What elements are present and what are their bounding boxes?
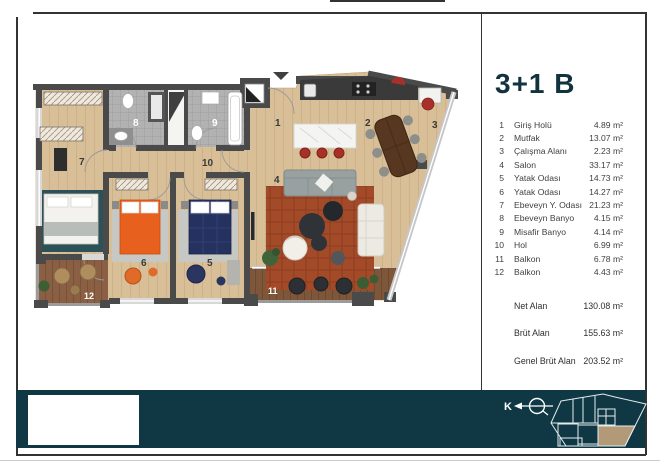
legend-room-no: 9	[493, 227, 504, 237]
total-genel-brut-alan: Genel Brüt Alan 203.52 m²	[493, 354, 623, 367]
legend-room-area: 6.99 m²	[594, 240, 623, 250]
legend-room-area: 2.23 m²	[594, 146, 623, 156]
legend-room-name: Ebeveyn Banyo	[514, 213, 594, 223]
legend-room-name: Hol	[514, 240, 594, 250]
site-plan-thumbnail	[548, 391, 648, 448]
legend-room-name: Balkon	[514, 267, 594, 277]
legend-room-name: Yatak Odası	[514, 187, 589, 197]
legend-room-area: 4.43 m²	[594, 267, 623, 277]
total-value: 155.63 m²	[583, 328, 623, 338]
legend-room-name: Ebeveyn Y. Odası	[514, 200, 589, 210]
room-label-4: 4	[274, 175, 280, 186]
legend-row: 6Yatak Odası14.27 m²	[493, 185, 623, 198]
total-label: Net Alan	[514, 301, 583, 311]
room-legend-list: 1Giriş Holü4.89 m² 2Mutfak13.07 m² 3Çalı…	[493, 118, 623, 279]
entrance-shaft	[240, 78, 270, 108]
legend-room-name: Misafir Banyo	[514, 227, 594, 237]
legend-room-area: 4.89 m²	[594, 120, 623, 130]
room-label-8: 8	[133, 118, 139, 129]
legend-room-area: 33.17 m²	[589, 160, 623, 170]
legend-room-no: 7	[493, 200, 504, 210]
room-label-11: 11	[268, 286, 278, 296]
legend-room-name: Çalışma Alanı	[514, 146, 594, 156]
legend-row: 9Misafir Banyo4.14 m²	[493, 225, 623, 238]
room-label-10: 10	[202, 158, 214, 169]
legend-room-area: 14.73 m²	[589, 173, 623, 183]
legend-room-no: 12	[493, 267, 504, 277]
room-label-5: 5	[207, 258, 213, 269]
legend-room-area: 6.78 m²	[594, 254, 623, 264]
legend-room-name: Yatak Odası	[514, 173, 589, 183]
legend-room-name: Salon	[514, 160, 589, 170]
room-label-12: 12	[84, 291, 94, 301]
legend-row: 7Ebeveyn Y. Odası21.23 m²	[493, 198, 623, 211]
legend-room-no: 3	[493, 146, 504, 156]
floor-plan-sheet: { "legend": { "title": "3+1 B", "rooms":…	[0, 0, 660, 466]
entrance-arrow-icon	[273, 72, 289, 80]
room-label-2: 2	[365, 118, 371, 129]
legend-room-no: 11	[493, 254, 504, 264]
legend-row: 10Hol6.99 m²	[493, 239, 623, 252]
total-label: Brüt Alan	[514, 328, 583, 338]
legend-room-area: 13.07 m²	[589, 133, 623, 143]
legend-row: 4Salon33.17 m²	[493, 158, 623, 171]
room-label-7: 7	[79, 157, 85, 168]
legend-room-area: 4.14 m²	[594, 227, 623, 237]
legend-row: 5Yatak Odası14.73 m²	[493, 172, 623, 185]
legend-row: 3Çalışma Alanı2.23 m²	[493, 145, 623, 158]
legend-room-area: 21.23 m²	[589, 200, 623, 210]
legend-room-no: 4	[493, 160, 504, 170]
legend-row: 12Balkon4.43 m²	[493, 265, 623, 278]
total-value: 130.08 m²	[583, 301, 623, 311]
total-label: Genel Brüt Alan	[514, 356, 583, 366]
legend-room-name: Mutfak	[514, 133, 589, 143]
total-value: 203.52 m²	[583, 356, 623, 366]
legend-room-area: 14.27 m²	[589, 187, 623, 197]
legend-room-no: 2	[493, 133, 504, 143]
logo-placeholder	[28, 395, 139, 445]
legend-row: 8Ebeveyn Banyo4.15 m²	[493, 212, 623, 225]
legend-row: 11Balkon6.78 m²	[493, 252, 623, 265]
total-brut-alan: Brüt Alan 155.63 m²	[493, 326, 623, 339]
room-label-9: 9	[212, 118, 218, 129]
site-plan-outline	[551, 394, 646, 446]
legend-room-no: 5	[493, 173, 504, 183]
legend-room-no: 8	[493, 213, 504, 223]
legend-room-area: 4.15 m²	[594, 213, 623, 223]
legend-row: 1Giriş Holü4.89 m²	[493, 118, 623, 131]
total-net-alan: Net Alan 130.08 m²	[493, 299, 623, 312]
legend-room-no: 1	[493, 120, 504, 130]
room-label-1: 1	[275, 118, 281, 129]
legend-room-no: 6	[493, 187, 504, 197]
room-label-6: 6	[141, 258, 147, 269]
legend-room-no: 10	[493, 240, 504, 250]
north-label: K	[504, 401, 512, 413]
room-label-3: 3	[432, 120, 438, 131]
legend-room-name: Giriş Holü	[514, 120, 594, 130]
legend-room-name: Balkon	[514, 254, 594, 264]
unit-type-title: 3+1 B	[495, 70, 576, 98]
legend-row: 2Mutfak13.07 m²	[493, 131, 623, 144]
